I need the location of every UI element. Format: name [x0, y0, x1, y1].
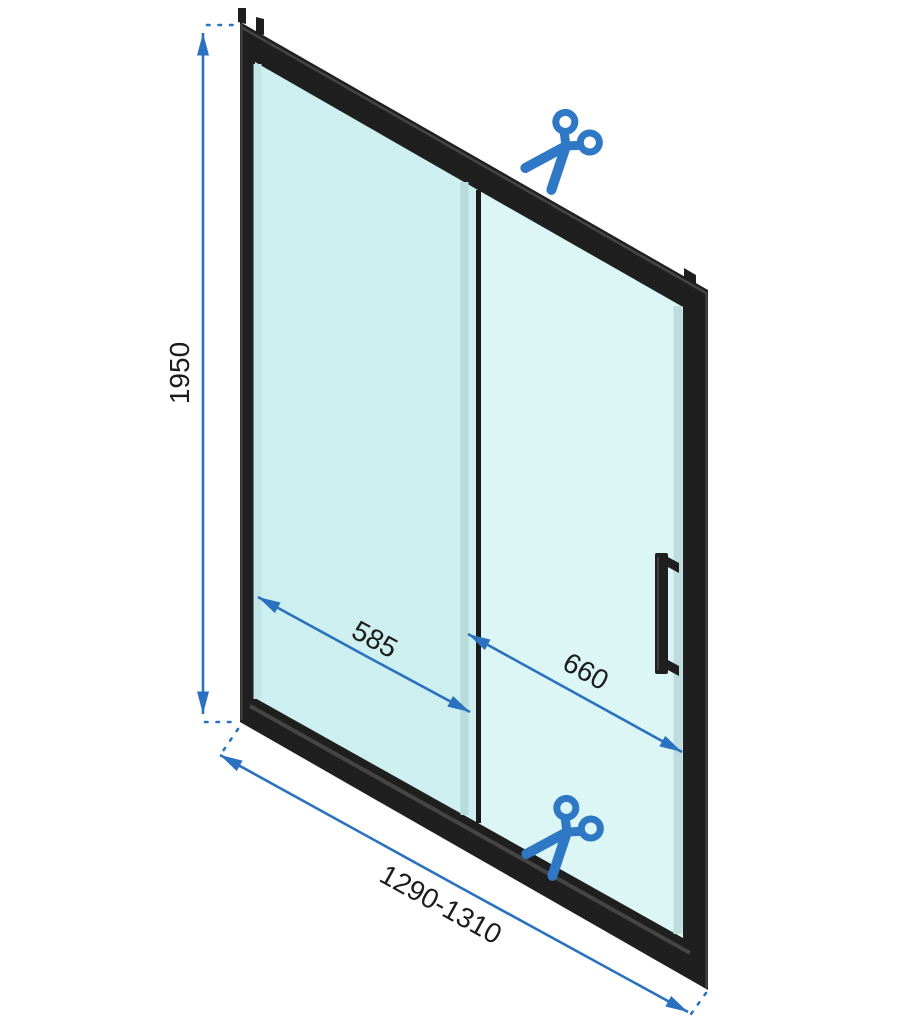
- diagram-canvas: 1950 585 660 1290-1310: [0, 0, 900, 1036]
- extension-line-corner-right: [691, 993, 706, 1014]
- extension-line-corner-left: [223, 729, 238, 751]
- scissors-icon-top: [519, 109, 603, 196]
- shower-door: [238, 8, 708, 990]
- dimension-height: 1950: [164, 25, 238, 722]
- handle-bar: [655, 553, 668, 674]
- height-dimension-label: 1950: [164, 342, 195, 404]
- total-width-dimension-label: 1290-1310: [375, 858, 507, 950]
- wall-bracket-top-left-2: [256, 17, 264, 35]
- glass-panel-fixed: [255, 62, 478, 823]
- wall-bracket-top-left: [238, 8, 246, 24]
- shower-door-dimension-drawing: 1950 585 660 1290-1310: [0, 0, 900, 1036]
